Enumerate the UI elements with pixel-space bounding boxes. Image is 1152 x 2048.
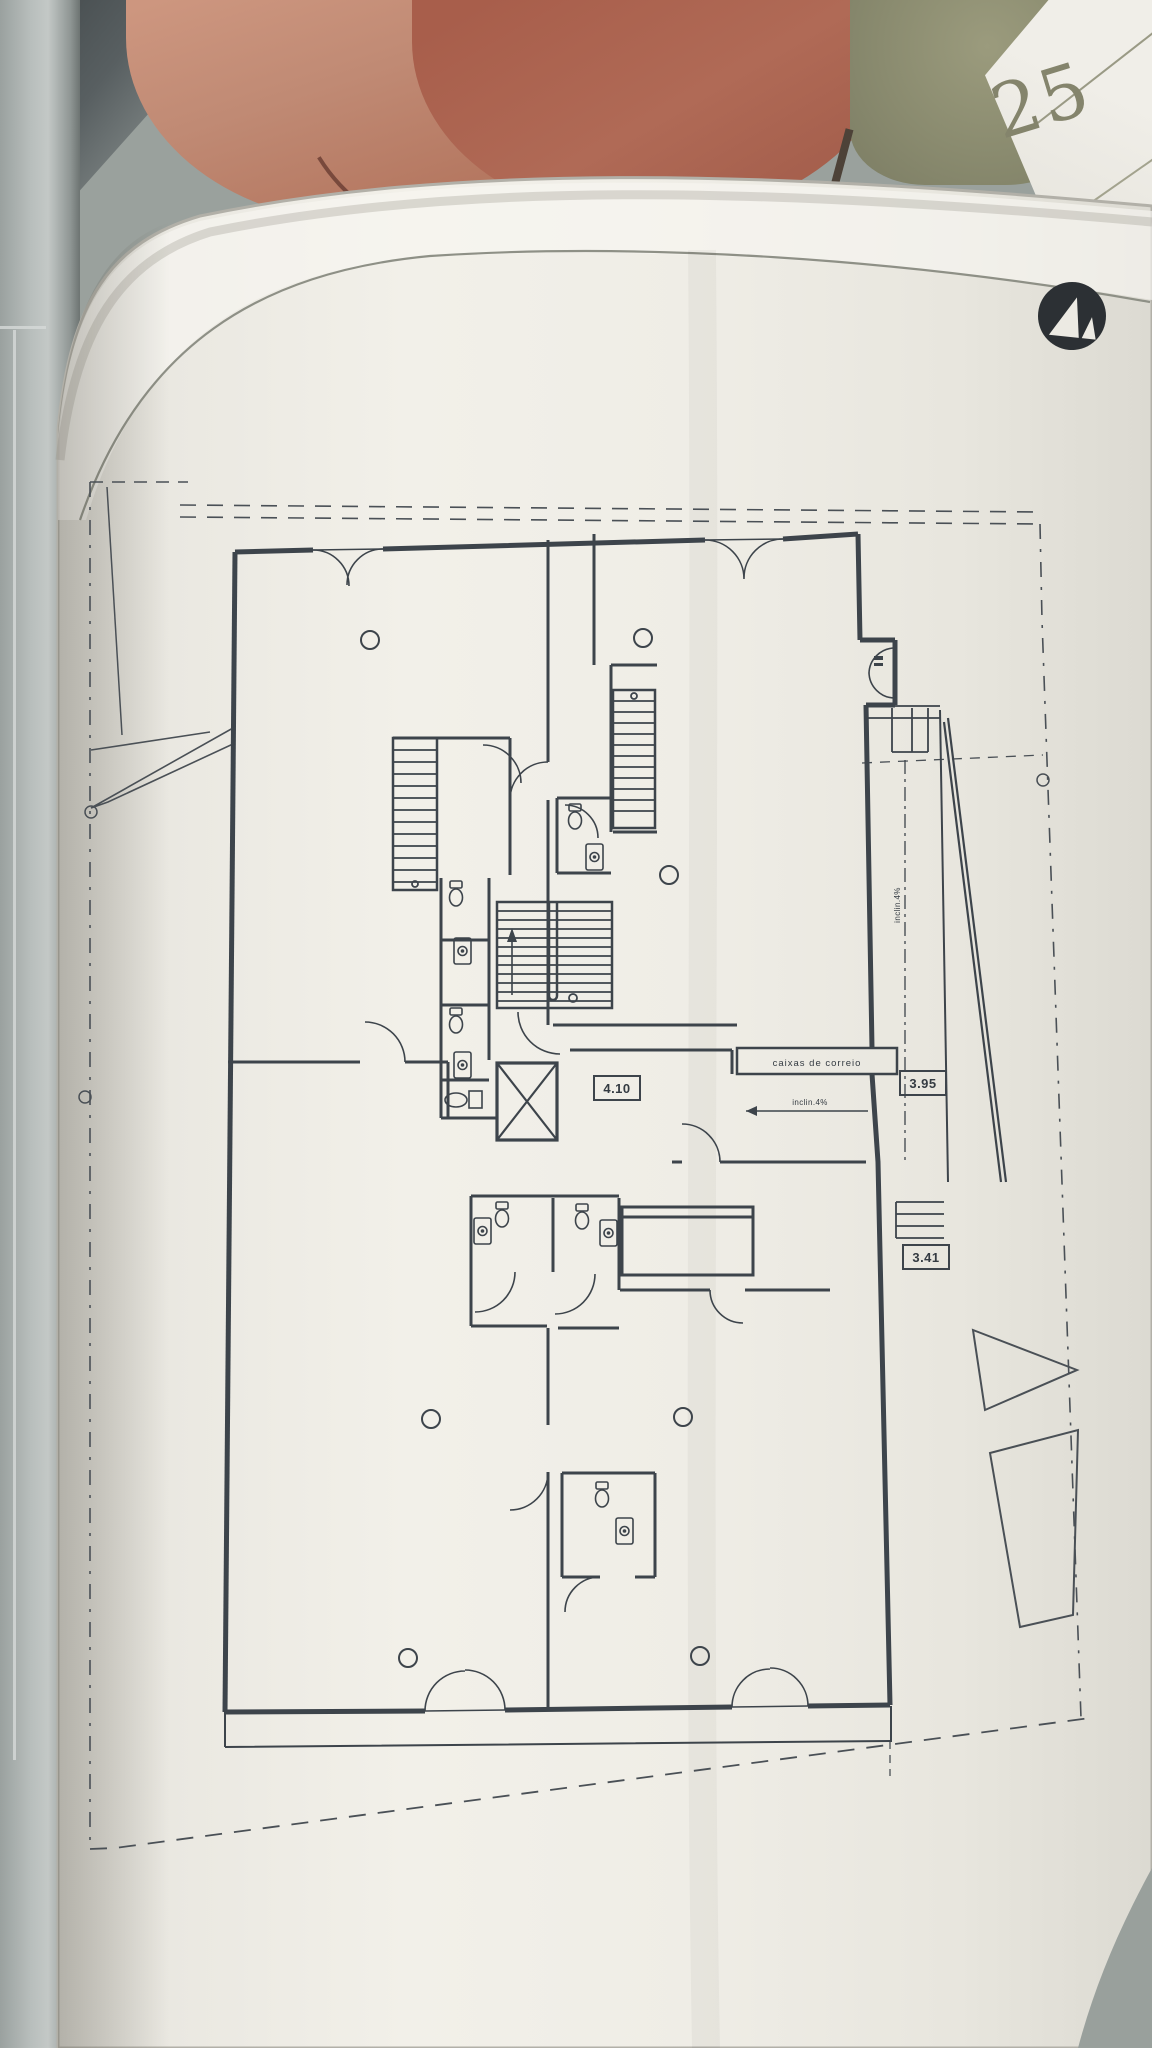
entry-niche-marks: [874, 656, 883, 660]
dim-hall-width: 4.10: [603, 1081, 630, 1096]
entry-niche-marks: [874, 663, 883, 666]
mailbox-label: caixas de correio: [773, 1058, 862, 1069]
ramp-slope-label: inclin.4%: [893, 887, 902, 923]
paper-sheet: [58, 178, 1152, 2048]
paper-left-curl-shading: [58, 222, 170, 2048]
plan-sheet-scene: caixas de correio 4.10 3.95 3.41 inclin.…: [0, 0, 1152, 2048]
entry-slope-label: inclin.4%: [792, 1098, 828, 1107]
paper-crease: [702, 250, 706, 2048]
dim-ramp-top: 3.95: [909, 1076, 936, 1091]
photo-of-floor-plan: 25: [0, 0, 1152, 2048]
dim-ramp-bottom: 3.41: [912, 1250, 939, 1265]
